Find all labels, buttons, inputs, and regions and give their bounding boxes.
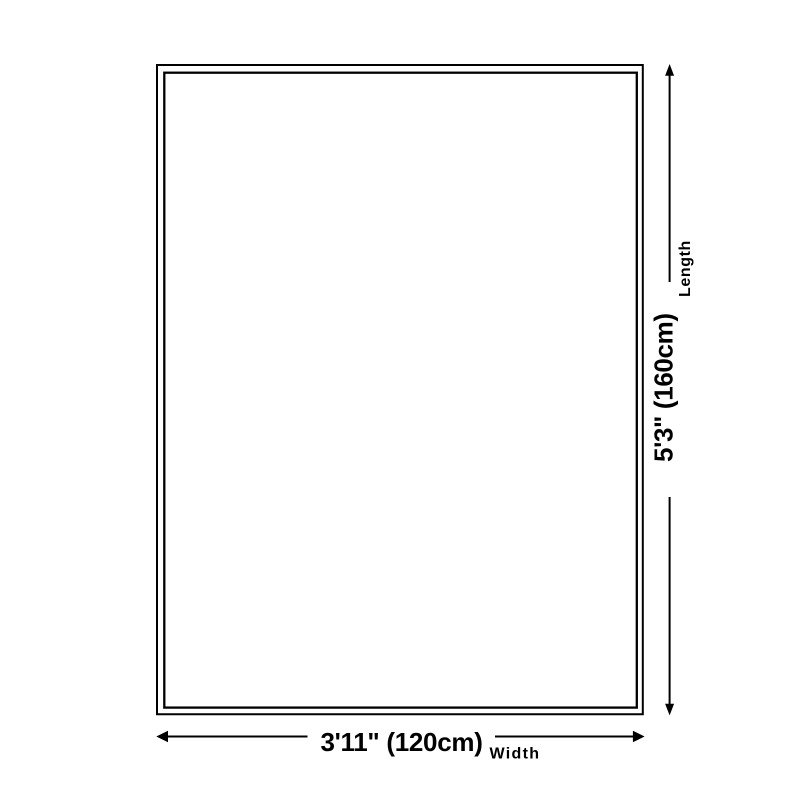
svg-text:5'3" (160cm): 5'3" (160cm) [649, 313, 679, 462]
svg-text:Length: Length [677, 240, 694, 297]
svg-text:Width: Width [490, 746, 541, 763]
svg-text:3'11" (120cm): 3'11" (120cm) [321, 727, 483, 757]
